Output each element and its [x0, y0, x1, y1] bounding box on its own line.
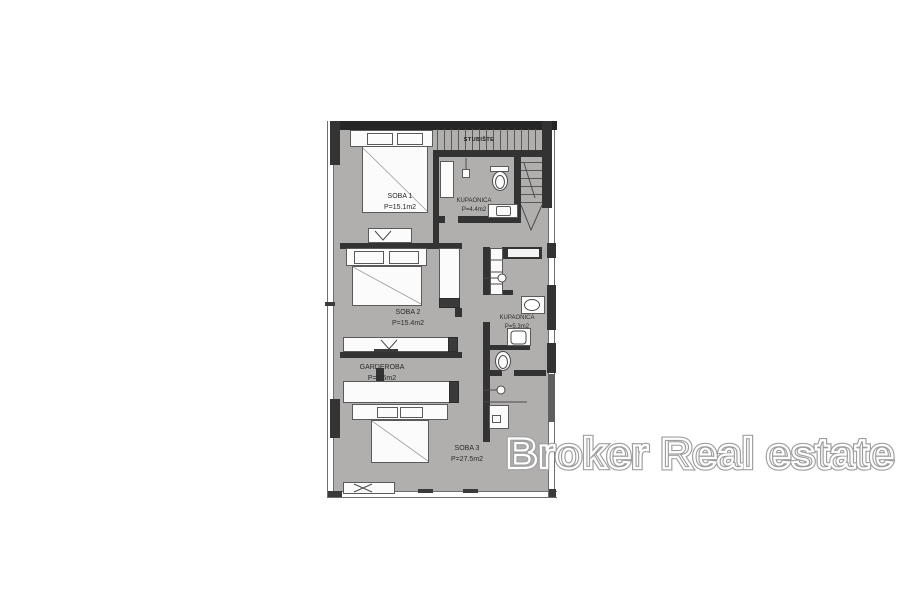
room-label-kupaonica2: KUPAONICA P=5.3m2 [500, 314, 535, 332]
room-area: P=4.4m2 [457, 206, 492, 215]
room-label-stubiste: STUBIŠTE [464, 137, 494, 143]
room-label-soba1: SOBA 1 P=15.1m2 [384, 191, 416, 213]
room-area: P=5.3m2 [500, 323, 535, 332]
stair-arrow-icon [521, 205, 542, 230]
room-name: GARDEROBA [360, 362, 405, 373]
room-area: P=27.5m2 [451, 454, 483, 465]
room-name: SOBA 3 [451, 443, 483, 454]
toilet-icon [496, 352, 511, 371]
toilet-icon [493, 172, 508, 191]
room-area: P=15.4m2 [392, 318, 424, 329]
sink-icon [525, 300, 540, 311]
room-area: P=15.1m2 [384, 202, 416, 213]
shower-head-icon [498, 274, 506, 282]
shower-head-icon [497, 386, 505, 394]
room-label-kupaonica1: KUPAONICA P=4.4m2 [457, 197, 492, 215]
fixtures-overlay [0, 0, 900, 600]
room-label-soba2: SOBA 2 P=15.4m2 [392, 307, 424, 329]
floor-plan-image: STUBIŠTE SOBA 1 P=15.1m2 KUPAONICA P=4.4… [0, 0, 900, 600]
room-name: SOBA 1 [384, 191, 416, 202]
room-name: KUPAONICA [500, 314, 535, 323]
room-area: P=6.5m2 [360, 373, 405, 384]
room-label-garderoba: GARDEROBA P=6.5m2 [360, 362, 405, 384]
room-name: KUPAONICA [457, 197, 492, 206]
room-label-soba3: SOBA 3 P=27.5m2 [451, 443, 483, 465]
room-name: SOBA 2 [392, 307, 424, 318]
